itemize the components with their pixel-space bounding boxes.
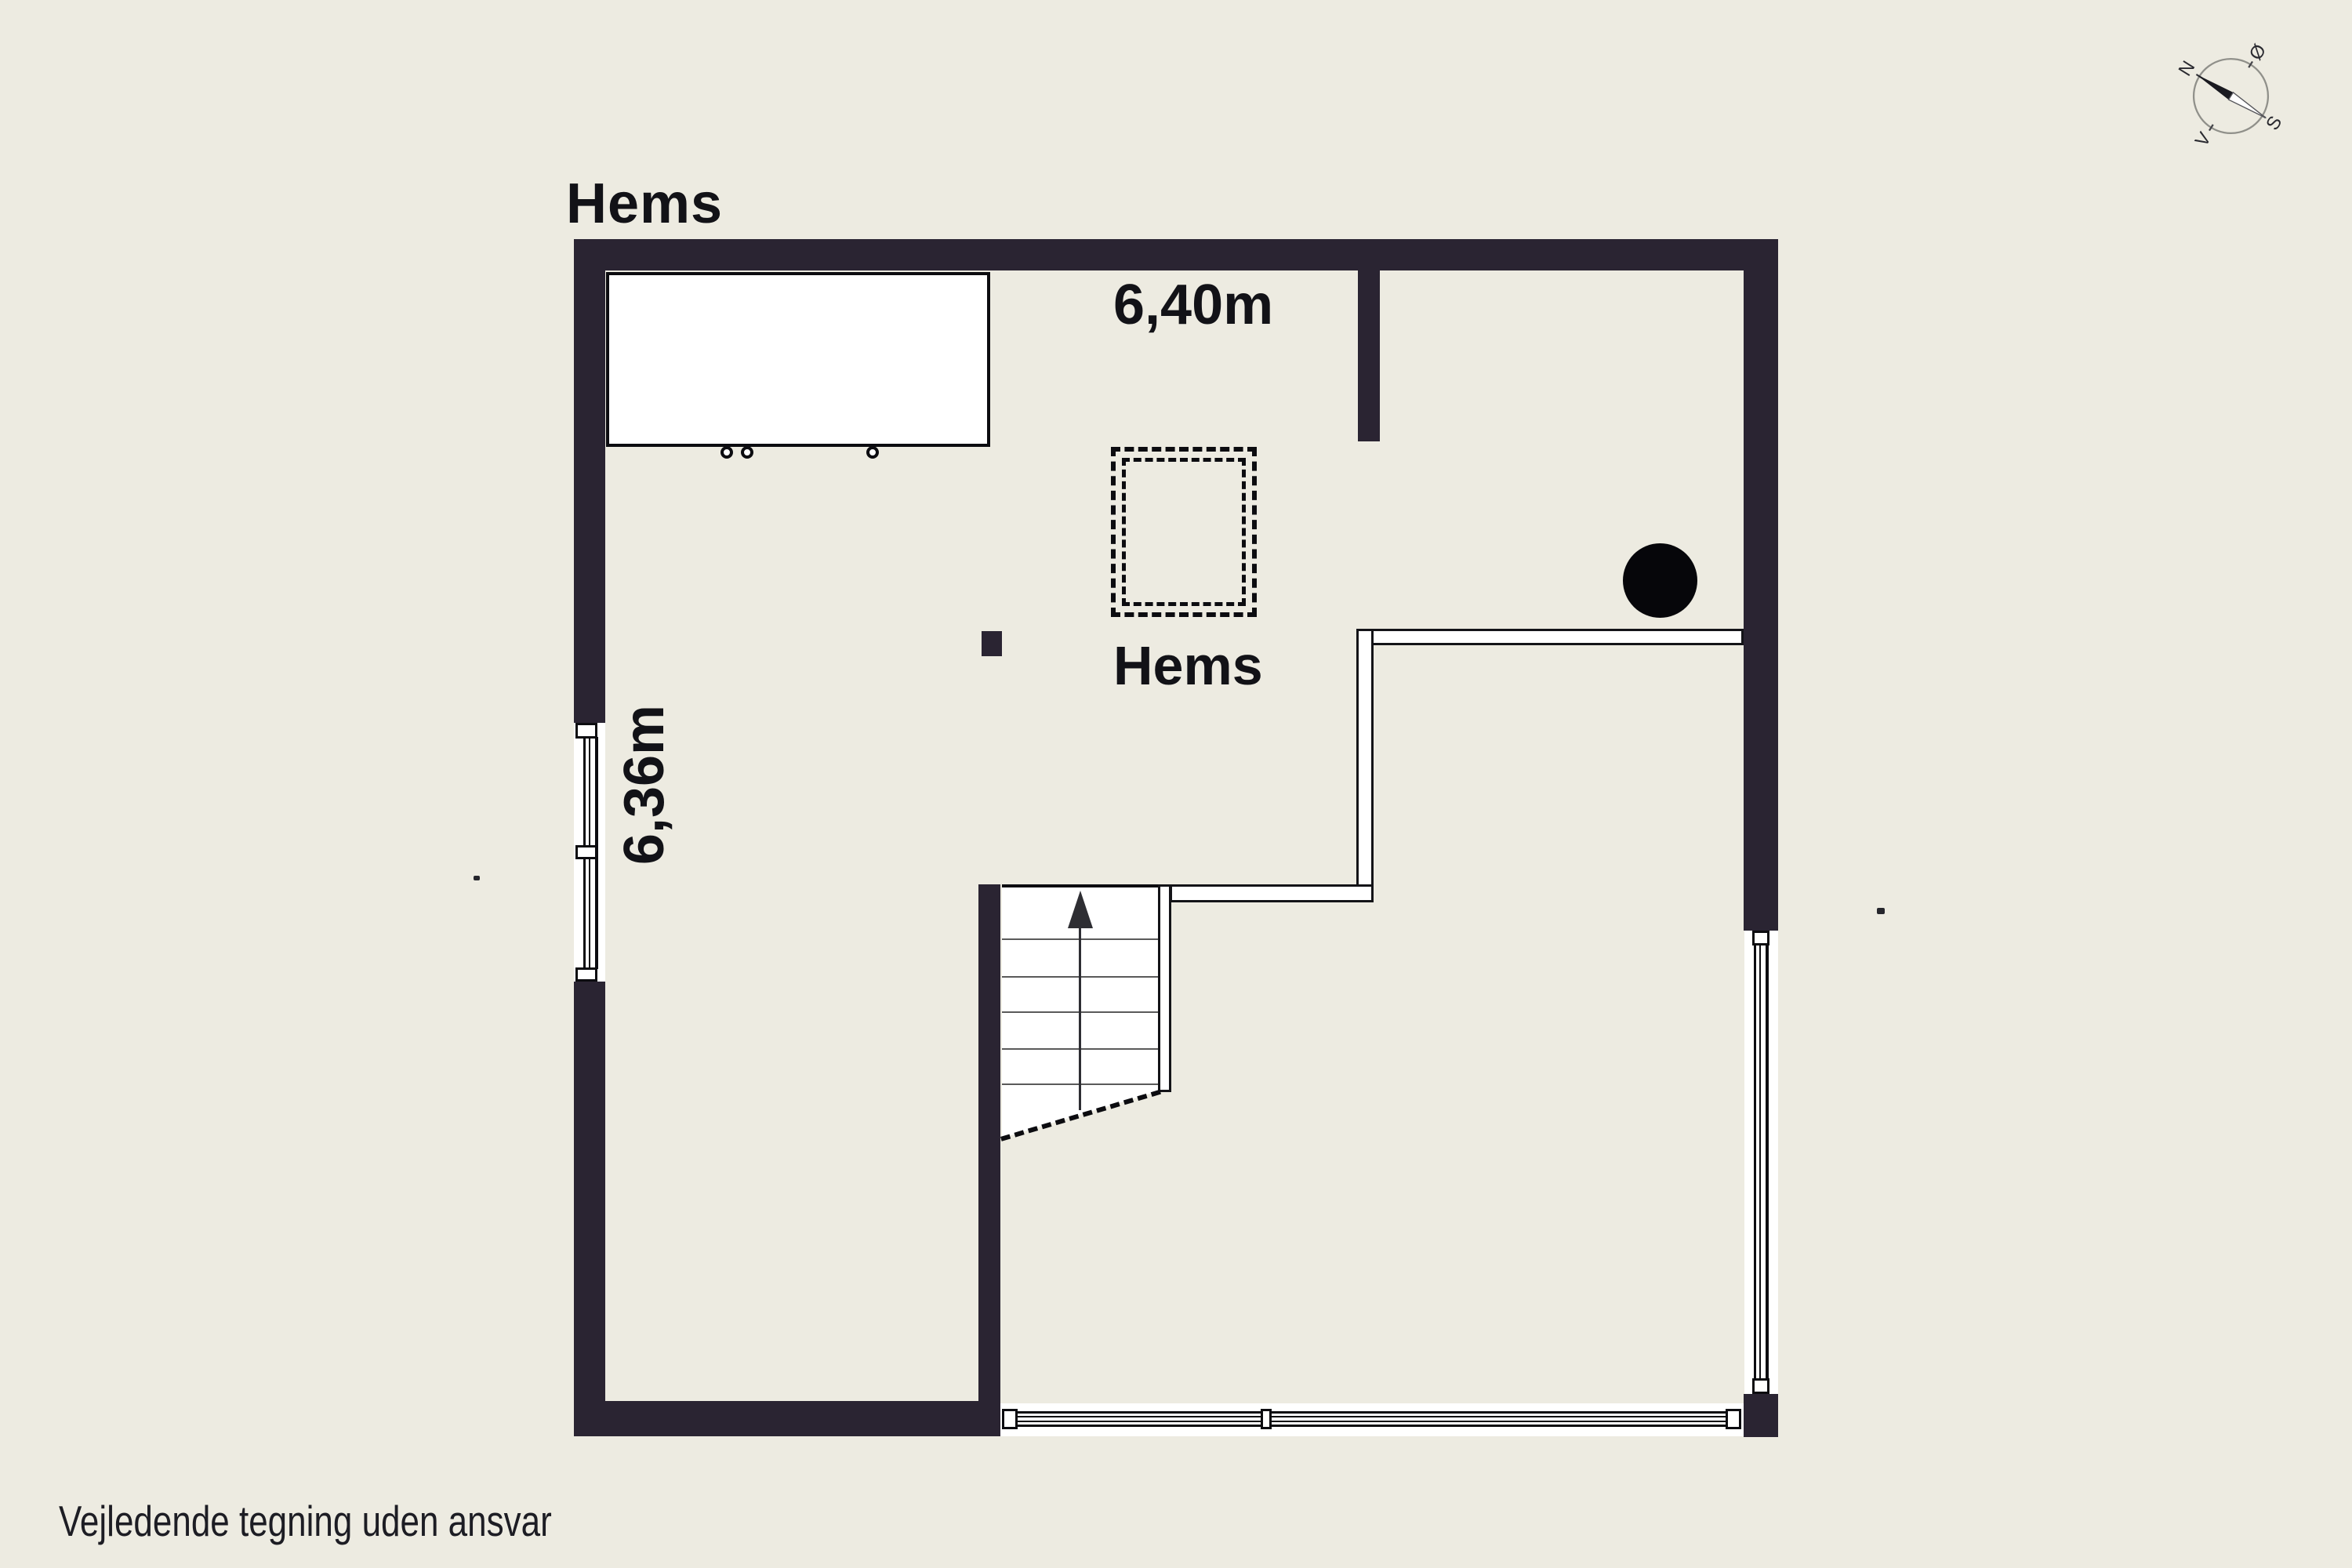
compass-rose: N Ø S V: [2170, 35, 2292, 157]
window-left-frame-bottom: [575, 967, 597, 982]
cabinet-knob: [866, 446, 879, 459]
window-bottom-frame-left: [1002, 1409, 1018, 1429]
dimension-height-label: 6,36m: [612, 705, 677, 865]
compass-label-v: V: [2191, 129, 2216, 150]
disclaimer-text: Vejledende tegning uden ansvar: [59, 1496, 552, 1546]
railing-top: [1356, 629, 1744, 645]
stove-circle: [1623, 543, 1697, 618]
plan-title: Hems: [566, 172, 723, 236]
railing-stair-top: [1170, 884, 1374, 902]
window-right-frame-top: [1752, 931, 1769, 946]
compass-label-n: N: [2175, 58, 2199, 80]
wall-right-upper: [1744, 270, 1778, 931]
staircase-top-edge: [1002, 884, 1158, 887]
furniture-cabinet: [606, 272, 990, 447]
cabinet-knob: [741, 446, 753, 459]
point-marker-right: [1877, 908, 1885, 914]
wall-corner-bottom-right: [1744, 1394, 1778, 1437]
window-right-glass: [1754, 944, 1768, 1380]
stair-direction-arrow-head: [1068, 891, 1093, 928]
wall-bottom-left: [574, 1401, 1000, 1436]
stair-direction-arrow-stem: [1079, 928, 1081, 1110]
loft-hatch-inner-outline: [1122, 458, 1246, 606]
loft-hatch-dashed-outline: [1111, 447, 1257, 617]
room-label: Hems: [1113, 634, 1263, 697]
window-bottom-frame-divider: [1261, 1409, 1272, 1429]
column-post: [982, 631, 1002, 656]
wall-left-upper: [574, 270, 605, 723]
window-left-frame-top: [575, 723, 597, 739]
floor-plan-page: { "title": "Hems", "labels": { "width_di…: [0, 0, 2352, 1568]
cabinet-knob: [720, 446, 733, 459]
window-bottom-frame-right: [1726, 1409, 1741, 1429]
window-bottom-glass: [1016, 1411, 1727, 1427]
compass-label-s: S: [2263, 113, 2286, 134]
window-left-frame-middle: [575, 845, 597, 859]
compass-label-e: Ø: [2245, 41, 2270, 64]
railing-stair-side: [1158, 884, 1171, 1092]
point-marker-left: [474, 876, 480, 880]
wall-top: [574, 239, 1778, 270]
wall-left-lower: [574, 982, 605, 1436]
railing-vertical: [1356, 629, 1374, 902]
wall-interior-stub: [1358, 270, 1380, 441]
dimension-width-label: 6,40m: [1113, 273, 1273, 337]
window-right-frame-bottom: [1752, 1378, 1769, 1394]
wall-stair-side: [978, 884, 1000, 1436]
